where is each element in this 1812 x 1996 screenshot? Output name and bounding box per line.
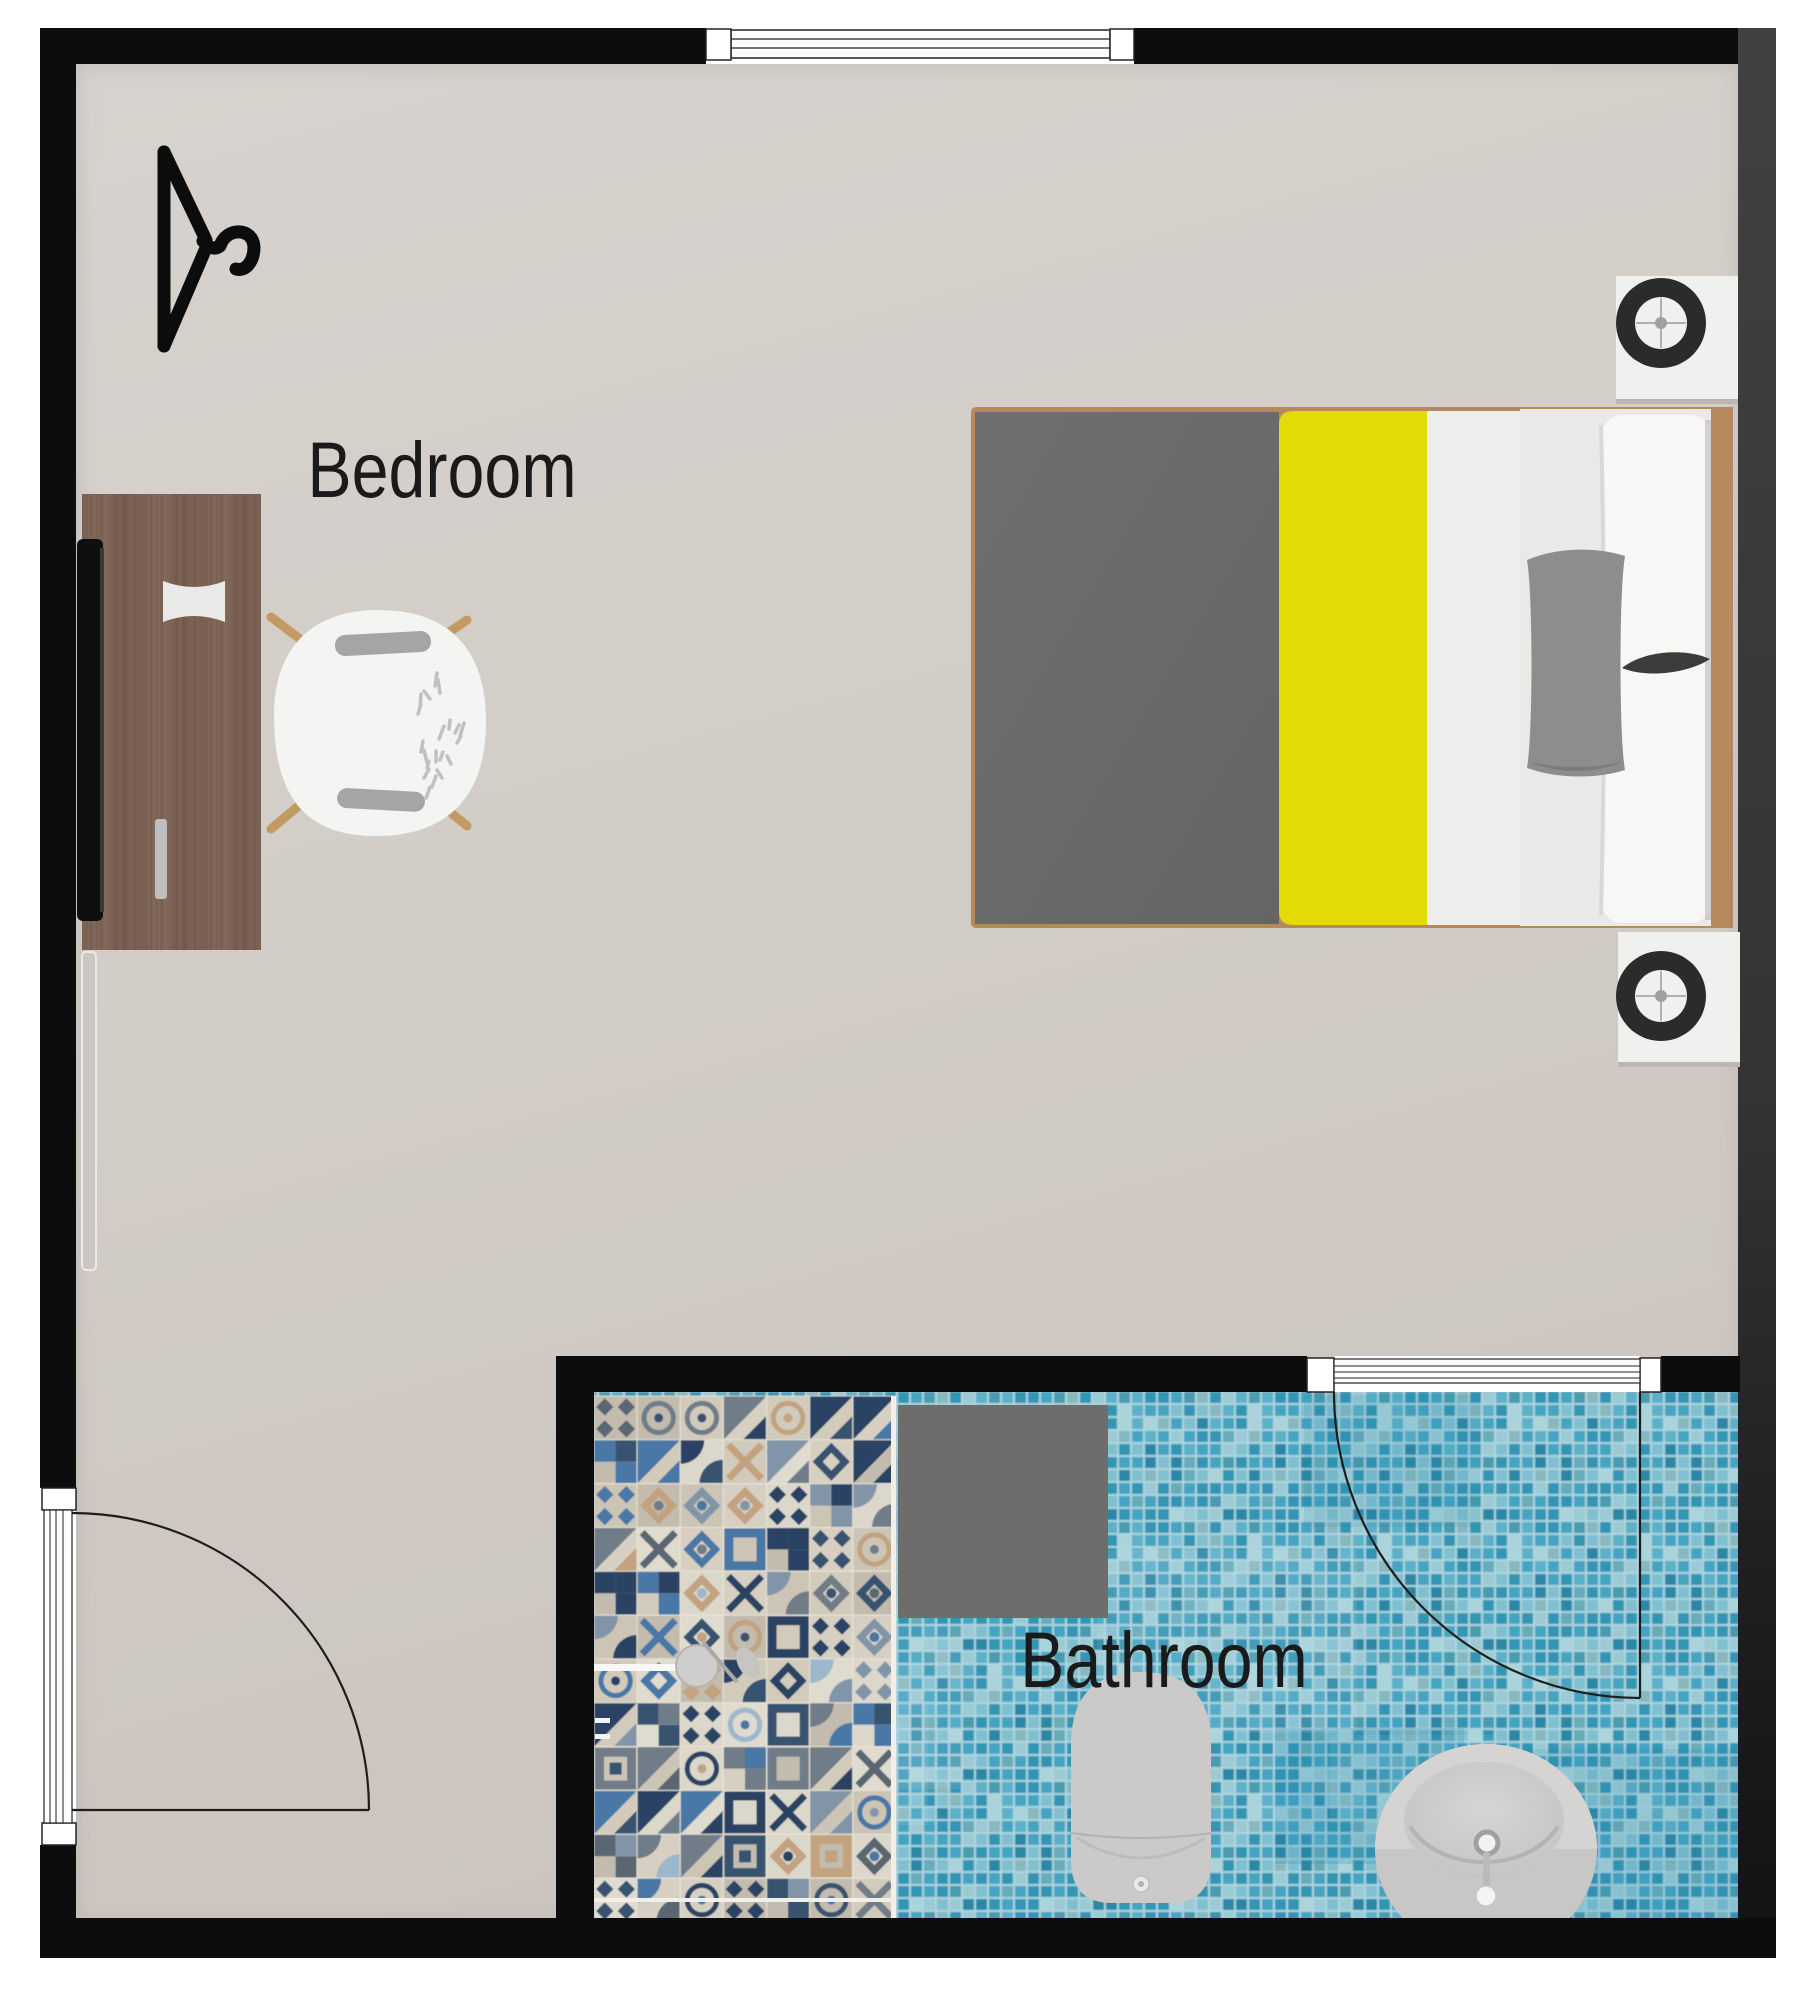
svg-text:Bathroom: Bathroom	[1020, 1617, 1308, 1705]
svg-text:Bedroom: Bedroom	[307, 427, 576, 515]
